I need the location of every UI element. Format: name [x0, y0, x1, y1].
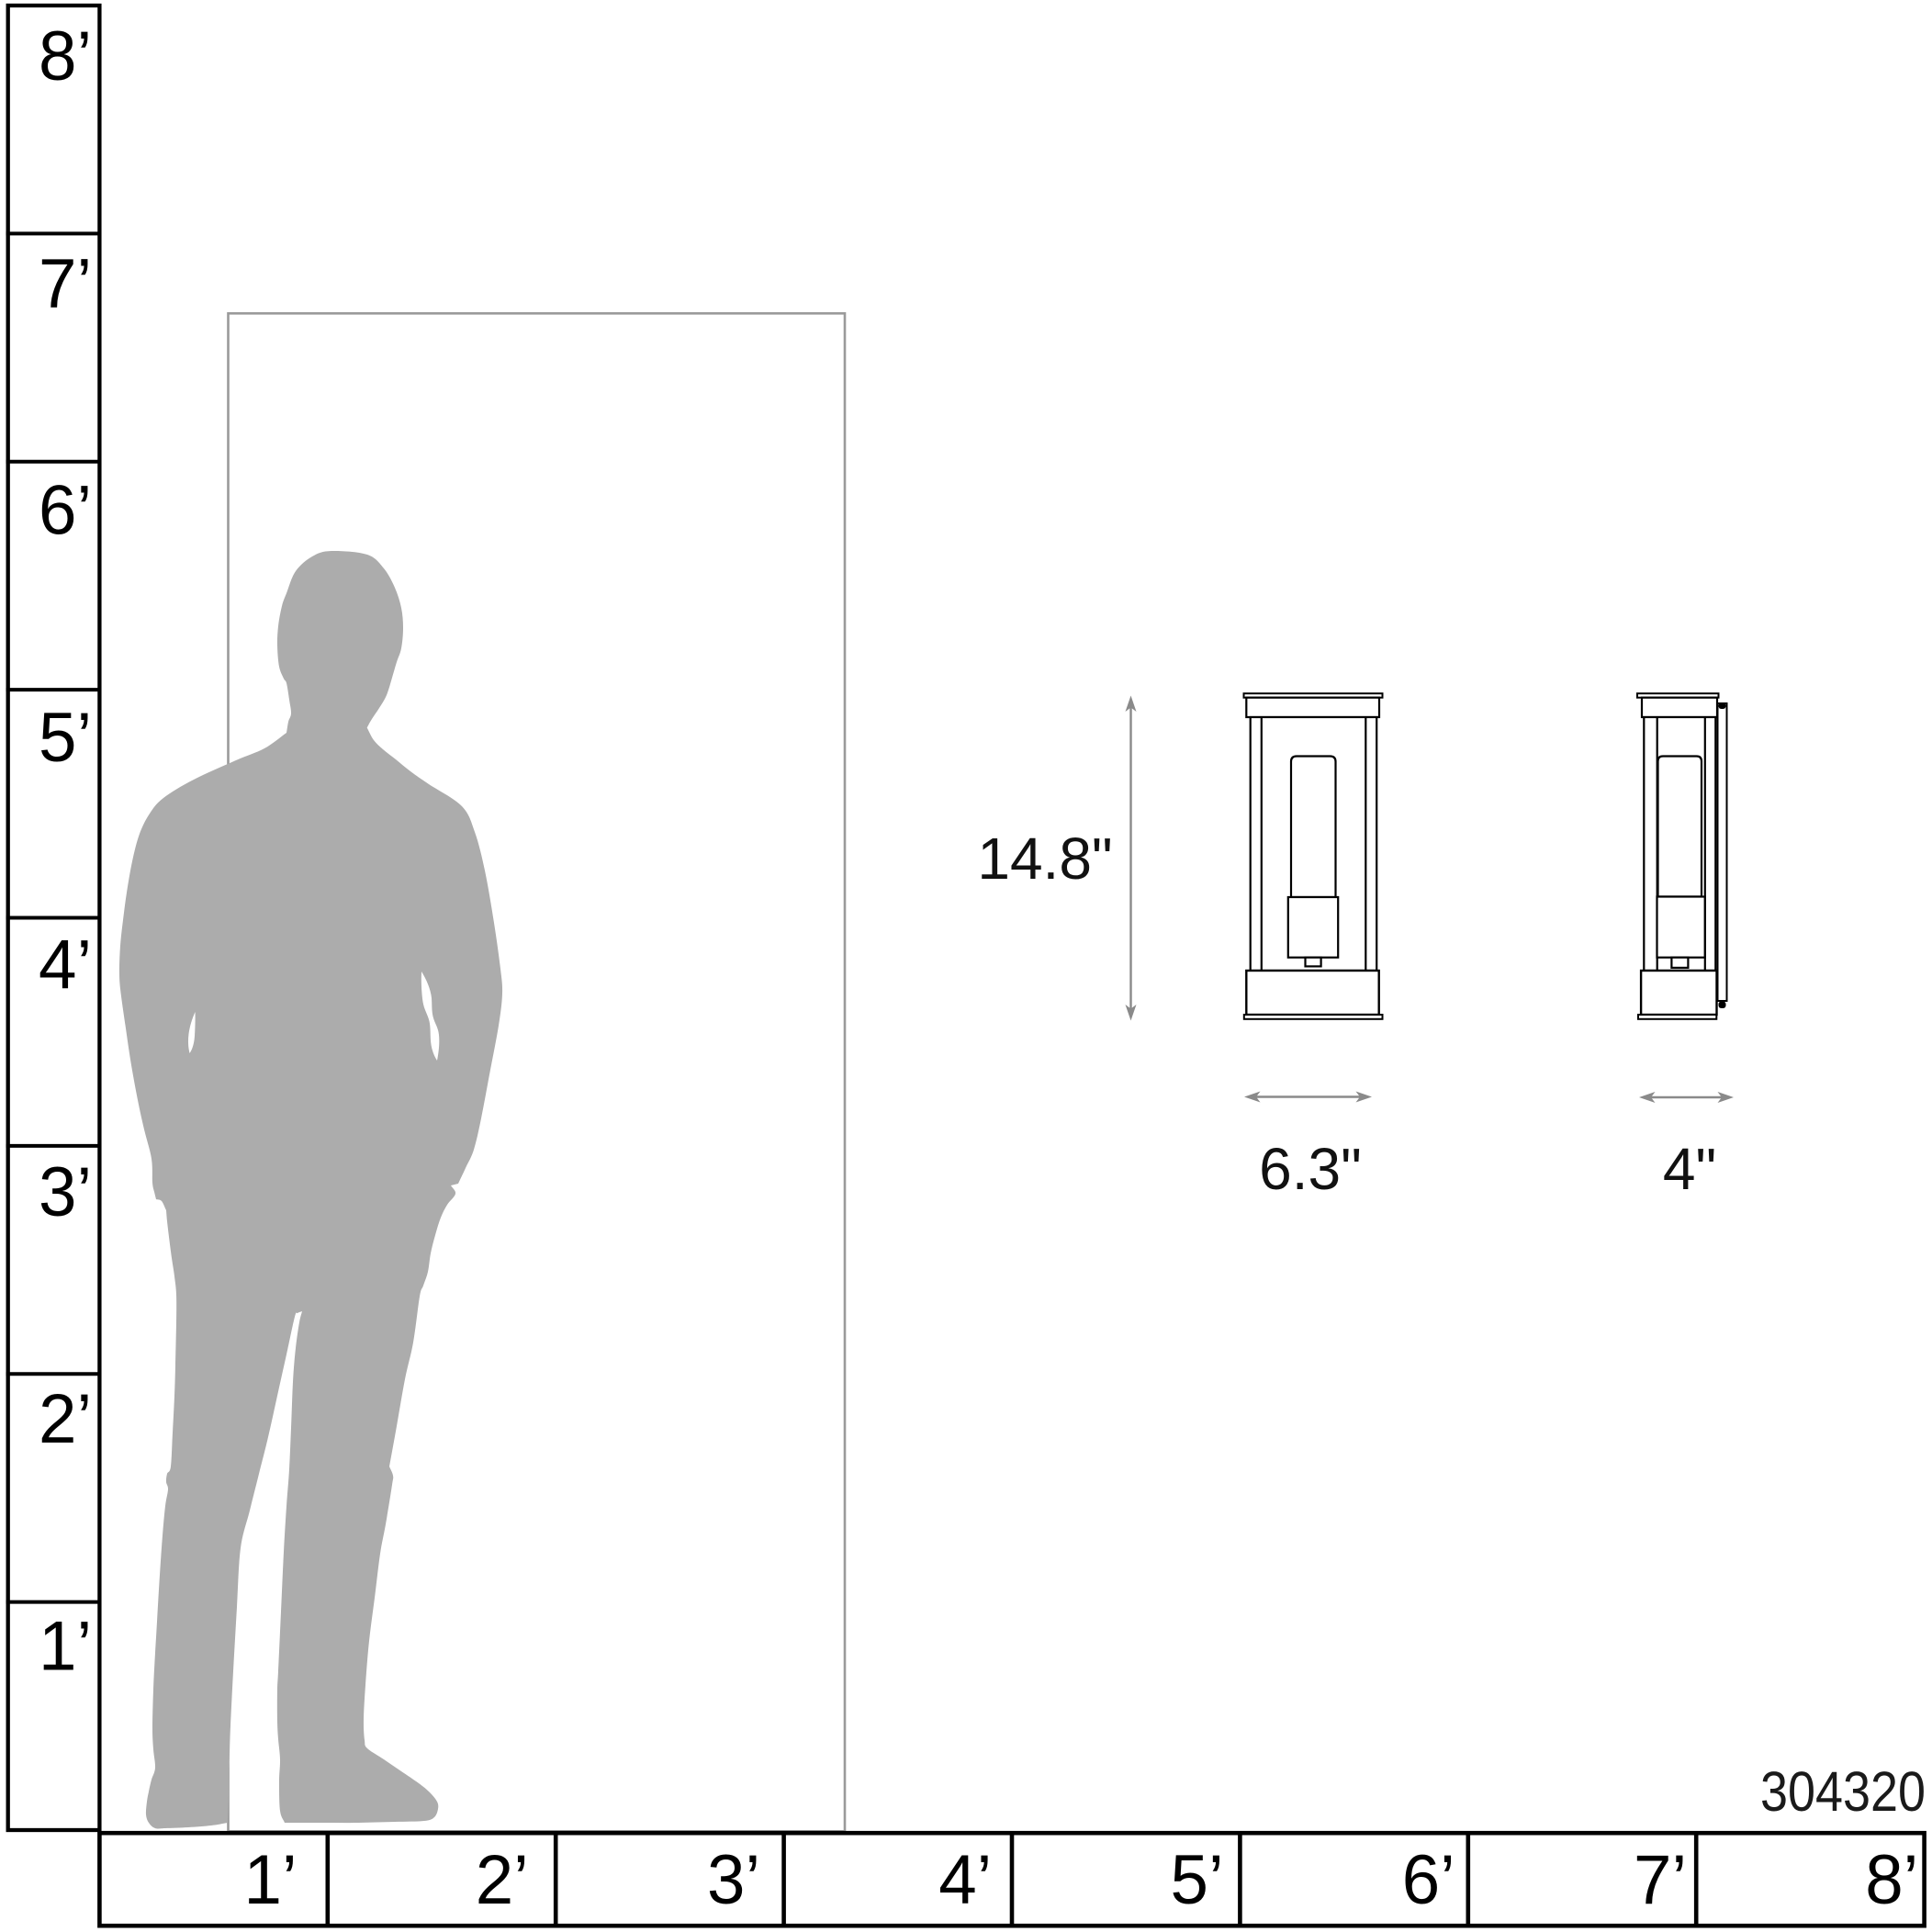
svg-text:8’: 8’ [1865, 1841, 1918, 1919]
svg-text:3’: 3’ [39, 1153, 92, 1231]
svg-text:4’: 4’ [938, 1841, 992, 1919]
svg-text:2’: 2’ [39, 1380, 92, 1458]
svg-text:5’: 5’ [1171, 1841, 1224, 1919]
svg-text:6’: 6’ [1402, 1841, 1455, 1919]
svg-text:7’: 7’ [1634, 1841, 1687, 1919]
svg-text:4": 4" [1663, 1136, 1716, 1202]
svg-text:8’: 8’ [39, 17, 92, 95]
svg-text:1’: 1’ [39, 1608, 92, 1686]
svg-text:7’: 7’ [39, 244, 92, 322]
svg-text:1’: 1’ [244, 1841, 298, 1919]
svg-text:14.8": 14.8" [977, 826, 1112, 892]
svg-text:5’: 5’ [39, 699, 92, 777]
svg-text:6’: 6’ [39, 472, 92, 550]
svg-text:304320: 304320 [1760, 1760, 1926, 1823]
svg-text:2’: 2’ [476, 1841, 529, 1919]
svg-text:3’: 3’ [707, 1841, 760, 1919]
svg-text:6.3": 6.3" [1259, 1136, 1362, 1202]
svg-text:4’: 4’ [39, 926, 92, 1004]
